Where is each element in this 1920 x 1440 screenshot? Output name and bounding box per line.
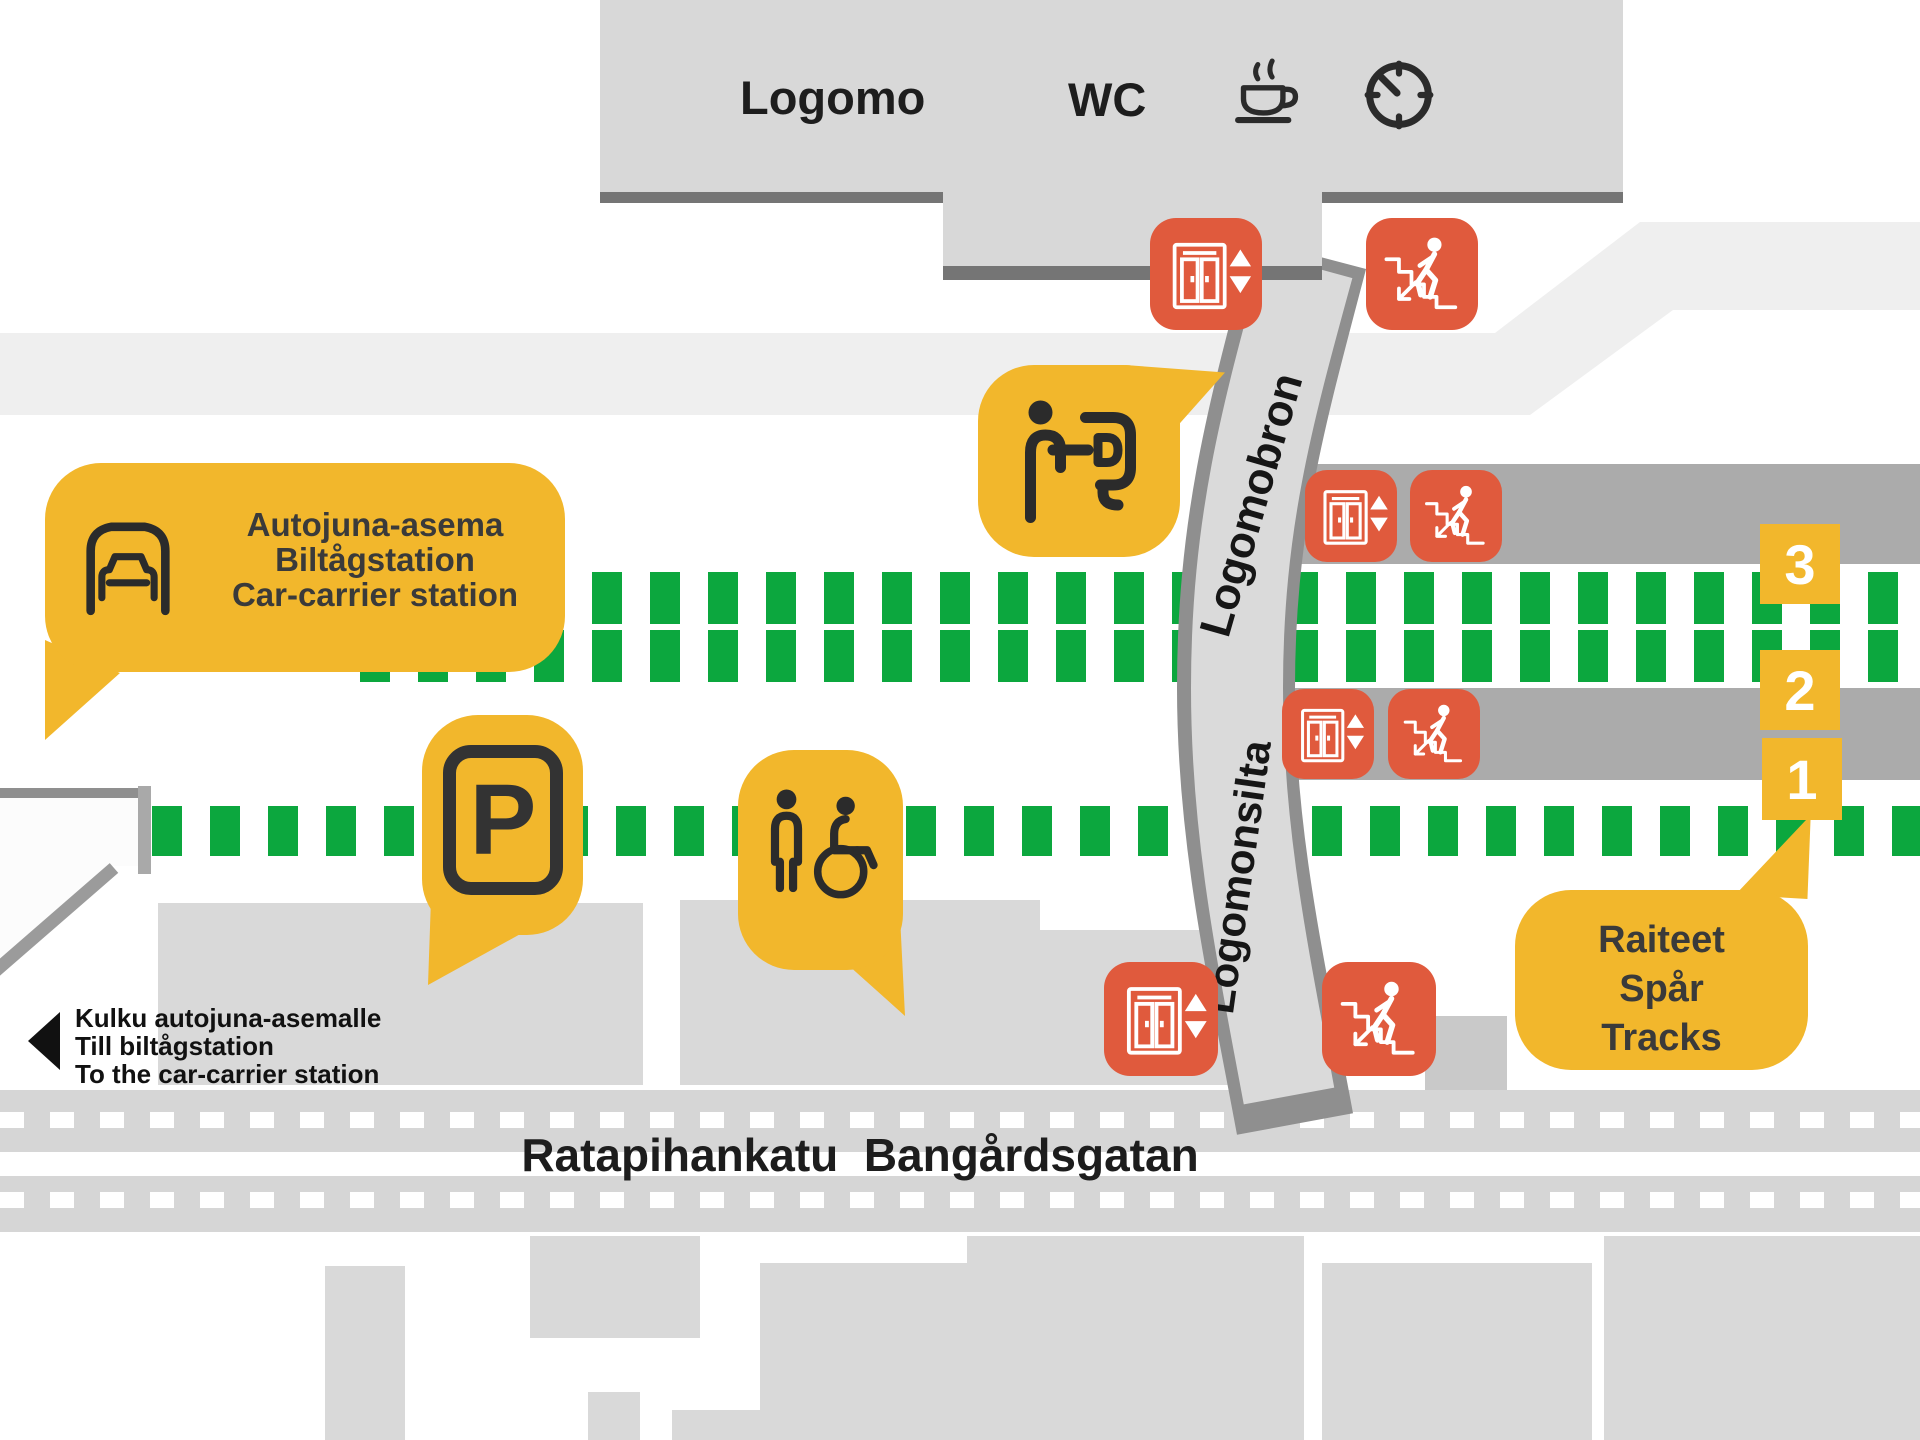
stairs-icon (1388, 689, 1480, 779)
stairs-icon (1366, 218, 1478, 330)
stairs-icon (1322, 962, 1436, 1076)
logomo-building-extension (943, 192, 1322, 266)
elevator-icon (1282, 689, 1374, 779)
logomo-label: Logomo (740, 70, 925, 125)
access-note-sv: Till biltågstation (75, 1031, 274, 1062)
elevator-icon (1104, 962, 1218, 1076)
building-edge (943, 266, 1322, 280)
tracks-text: Raiteet Spår Tracks (1515, 916, 1808, 1063)
car-carrier-icon (72, 496, 184, 636)
car-carrier-line-sv: Biltågstation (195, 542, 555, 577)
elevator-icon (1305, 470, 1397, 562)
info-desk-icon (1000, 385, 1156, 535)
stairs-icon (1410, 470, 1502, 562)
access-note-fi: Kulku autojuna-asemalle (75, 1003, 381, 1034)
track-badge-1: 1 (1762, 738, 1842, 820)
track-badge-3: 3 (1760, 524, 1840, 604)
parking-sign-icon: P (443, 745, 563, 895)
building-edge (600, 192, 943, 203)
arrow-left-icon (28, 1012, 60, 1070)
tracks-line-en: Tracks (1515, 1014, 1808, 1063)
wc-label: WC (1068, 72, 1146, 127)
tracks-line-fi: Raiteet (1515, 916, 1808, 965)
station-map: Ratapihankatu Bangårdsgatan Logomo WC Lo… (0, 0, 1920, 1440)
coffee-cup-icon (1222, 50, 1308, 140)
elevator-icon (1150, 218, 1262, 330)
access-note-en: To the car-carrier station (75, 1059, 379, 1090)
clock-icon (1356, 50, 1442, 140)
car-carrier-line-en: Car-carrier station (195, 577, 555, 612)
accessible-toilet-icon (752, 772, 890, 922)
car-carrier-line-fi: Autojuna-asema (195, 507, 555, 542)
building-edge (1322, 192, 1623, 203)
tracks-line-sv: Spår (1515, 965, 1808, 1014)
track-badge-2: 2 (1760, 650, 1840, 730)
parking-letter: P (470, 763, 537, 878)
car-carrier-text: Autojuna-asema Biltågstation Car-carrier… (195, 507, 555, 612)
